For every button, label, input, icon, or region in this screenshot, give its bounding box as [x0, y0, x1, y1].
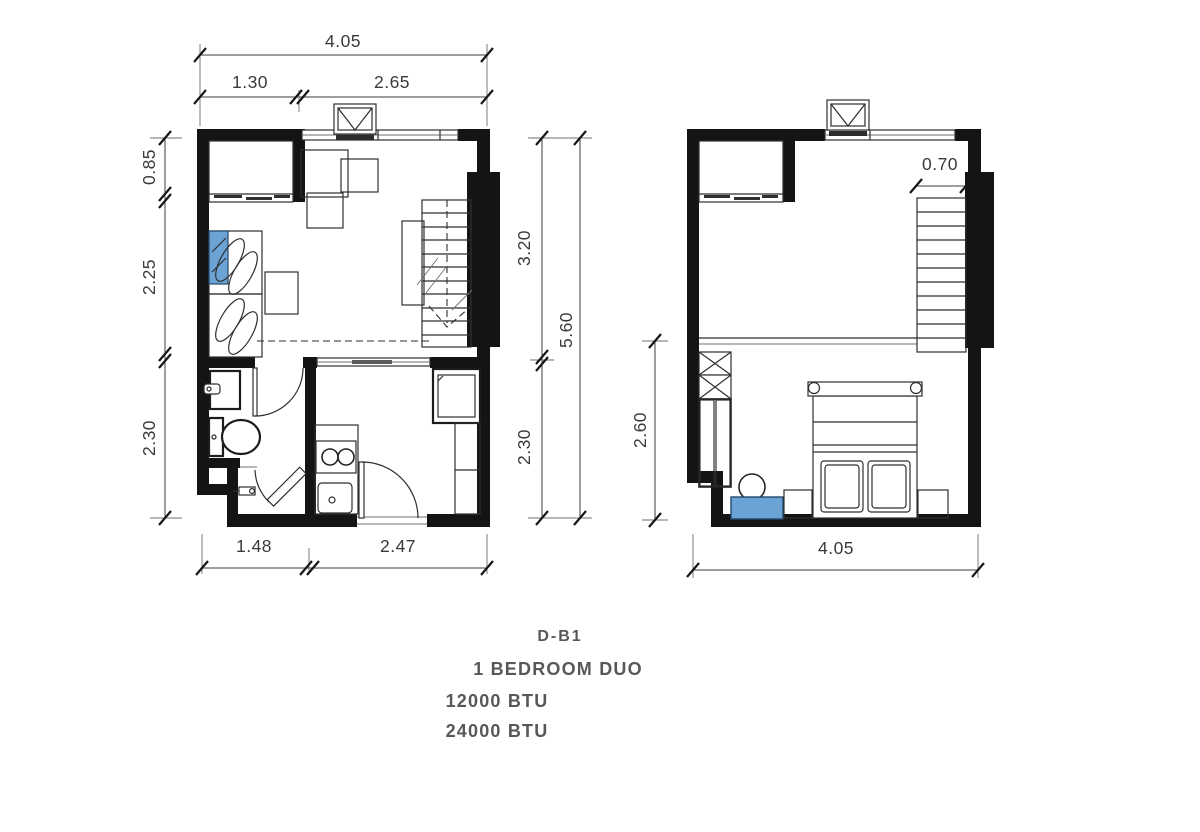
dim-bottom-total: 4.05	[818, 538, 854, 558]
shower-door	[267, 467, 306, 506]
unit-type: 1 BEDROOM DUO	[473, 659, 643, 679]
vanity	[731, 474, 783, 519]
stove	[316, 441, 356, 473]
dim-left-top: 0.85	[139, 149, 159, 185]
dim-top-right: 2.65	[374, 72, 410, 92]
floor-plan-drawing: 4.05 1.30 2.65 0.85 2.25 2.30 3.20 2.30 …	[0, 0, 1200, 832]
bathroom-door	[253, 368, 303, 416]
dim-left-mid: 2.25	[139, 259, 159, 295]
dim-right-total: 5.60	[556, 312, 576, 348]
dim-bottom-left: 1.48	[236, 536, 272, 556]
bed-footboard	[808, 382, 922, 396]
closet	[209, 141, 293, 202]
sliding-window	[317, 358, 430, 366]
staircase	[917, 198, 966, 352]
dim-top-total: 4.05	[325, 31, 361, 51]
kitchen	[315, 369, 480, 524]
counter-right	[455, 423, 480, 514]
nightstand-left	[784, 490, 812, 518]
btu-line1: 12000 BTU	[446, 691, 549, 711]
dim-bottom-right: 2.47	[380, 536, 416, 556]
dim-right-lower: 2.30	[514, 429, 534, 465]
unit-code: D-B1	[537, 628, 582, 645]
floor-plan-page: 4.05 1.30 2.65 0.85 2.25 2.30 3.20 2.30 …	[0, 0, 1200, 832]
kitchen-sink	[318, 483, 352, 513]
vanity-stool-blue	[731, 497, 783, 519]
bathroom-sink	[204, 371, 240, 409]
dim-top-left: 1.30	[232, 72, 268, 92]
chair-circle	[739, 474, 765, 500]
entry-door	[357, 462, 427, 524]
loft-edge	[699, 338, 917, 344]
closet	[699, 141, 783, 202]
window-top	[302, 130, 458, 140]
pillow	[223, 248, 263, 299]
caption: D-B1 1 BEDROOM DUO 12000 BTU 24000 BTU	[446, 628, 643, 741]
tables	[301, 150, 424, 305]
staircase	[417, 200, 472, 347]
toilet	[209, 418, 260, 456]
pillow	[223, 308, 263, 359]
btu-line2: 24000 BTU	[446, 721, 549, 741]
sofa-daybed	[209, 231, 298, 358]
lower-floor-plan: 4.05 1.30 2.65 0.85 2.25 2.30 3.20 2.30 …	[139, 31, 592, 575]
side-table	[265, 272, 298, 314]
nightstand-right	[918, 490, 948, 518]
dim-left-bottom: 2.30	[139, 420, 159, 456]
dim-right-upper: 3.20	[514, 230, 534, 266]
pillow	[210, 295, 250, 346]
shower	[233, 467, 306, 506]
refrigerator	[433, 369, 480, 423]
dim-left-height: 2.60	[630, 412, 650, 448]
dim-stair-width: 0.70	[922, 154, 958, 174]
upper-floor-plan: 0.70 2.60 4.05	[630, 100, 994, 578]
ac-outdoor-units	[699, 352, 731, 399]
bed	[784, 382, 948, 518]
stair-treads	[917, 212, 966, 338]
stair-direction-arrow	[429, 306, 468, 327]
stair-side-shelf	[402, 221, 424, 305]
